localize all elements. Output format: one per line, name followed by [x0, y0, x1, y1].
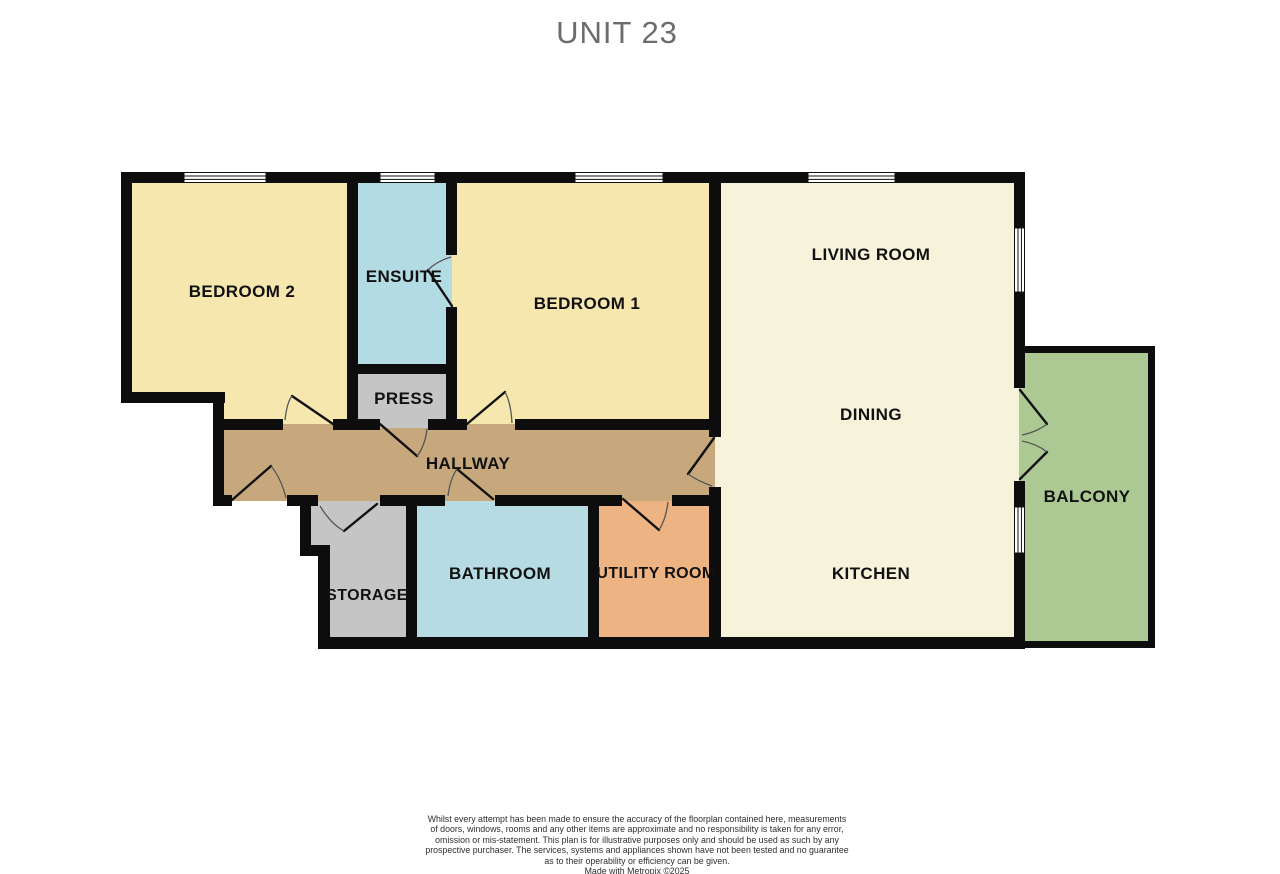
room-label-bedroom1: BEDROOM 1	[534, 294, 641, 314]
room-label-living: LIVING ROOM	[812, 245, 931, 265]
disclaimer-line: prospective purchaser. The services, sys…	[357, 845, 917, 855]
room-label-utility: UTILITY ROOM	[596, 565, 715, 583]
window-ensuite	[380, 173, 435, 183]
disclaimer-line: as to their operability or efficiency ca…	[357, 856, 917, 866]
room-label-dining: DINING	[840, 405, 902, 425]
room-label-hallway: HALLWAY	[426, 454, 510, 474]
disclaimer-line: of doors, windows, rooms and any other i…	[357, 824, 917, 834]
disclaimer-credit: Made with Metropix ©2025	[357, 866, 917, 874]
window-kitchen-side	[1015, 507, 1025, 553]
room-label-kitchen: KITCHEN	[832, 564, 910, 584]
window-bedroom2	[184, 173, 266, 183]
room-label-ensuite: ENSUITE	[366, 267, 442, 287]
room-label-balcony: BALCONY	[1044, 487, 1131, 507]
window-bedroom1	[575, 173, 663, 183]
window-living-side	[1015, 228, 1025, 292]
floorplan-drawing	[0, 0, 1280, 874]
room-label-bedroom2: BEDROOM 2	[189, 282, 296, 302]
disclaimer-line: Whilst every attempt has been made to en…	[357, 814, 917, 824]
floorplan-page: { "title": "UNIT 23", "rooms": { "bedroo…	[0, 0, 1280, 874]
disclaimer-line: omission or mis-statement. This plan is …	[357, 835, 917, 845]
room-label-press: PRESS	[374, 389, 434, 409]
room-label-bathroom: BATHROOM	[449, 564, 551, 584]
room-label-storage: STORAGE	[326, 587, 408, 605]
disclaimer: Whilst every attempt has been made to en…	[357, 814, 917, 874]
window-living-top	[808, 173, 895, 183]
